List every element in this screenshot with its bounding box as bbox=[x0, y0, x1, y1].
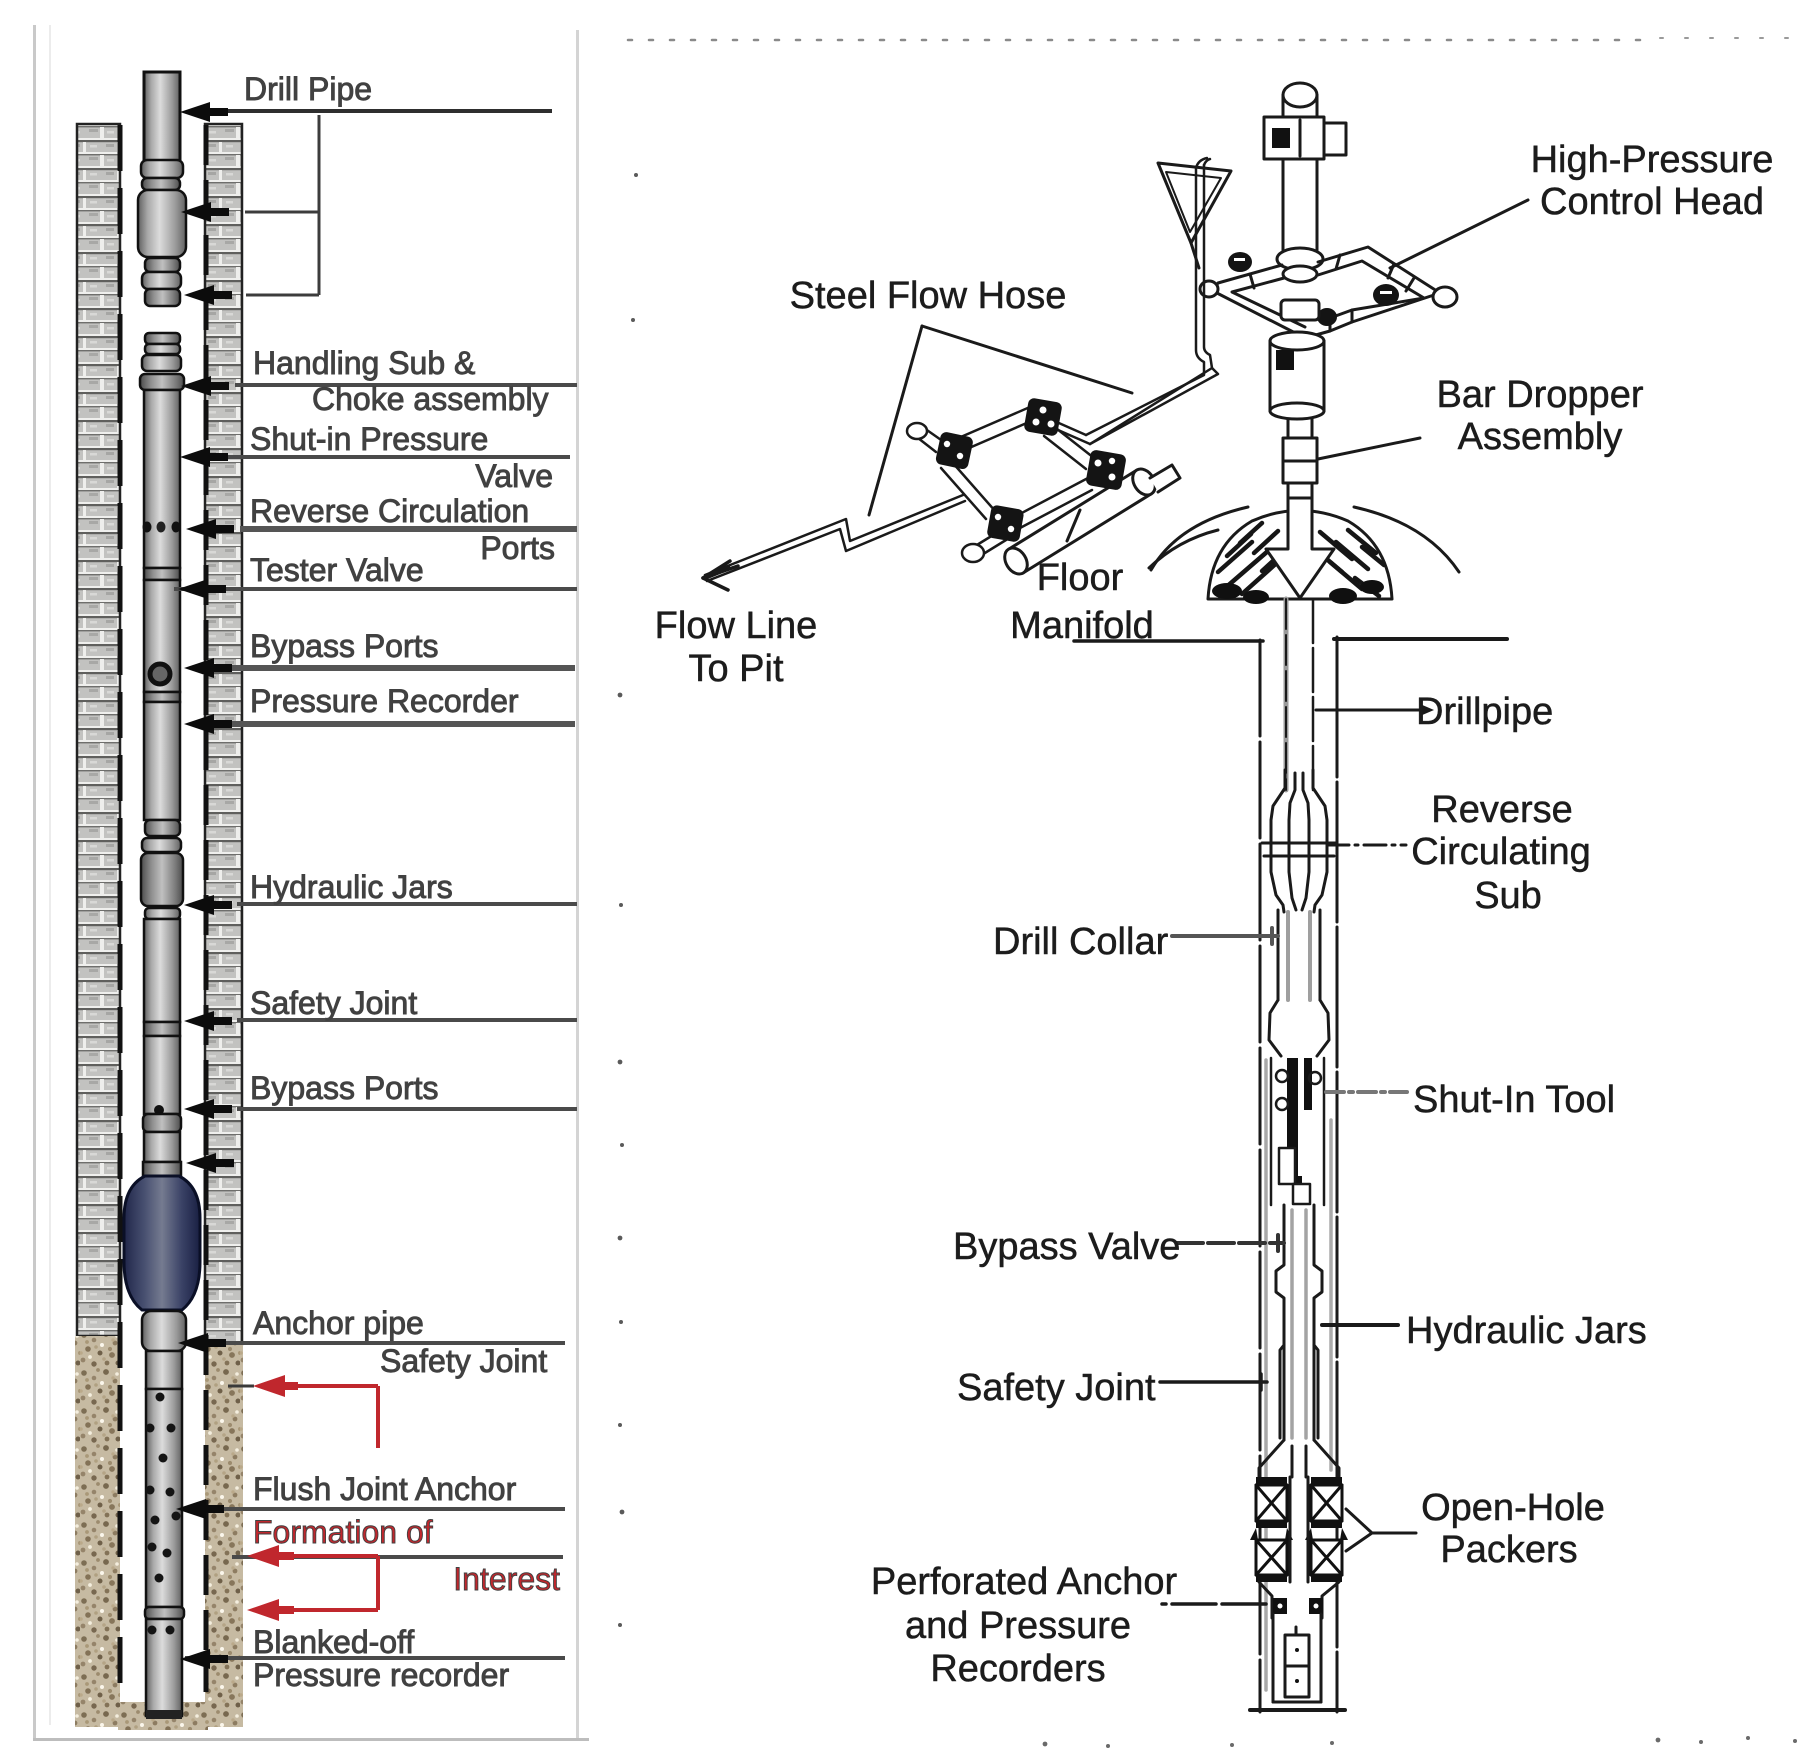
svg-text:Manifold: Manifold bbox=[1010, 605, 1154, 647]
svg-text:Open-Hole: Open-Hole bbox=[1421, 1487, 1605, 1529]
svg-text:Hydraulic Jars: Hydraulic Jars bbox=[1406, 1310, 1647, 1352]
svg-text:Ports: Ports bbox=[480, 530, 555, 566]
svg-text:Safety Joint: Safety Joint bbox=[250, 985, 417, 1021]
svg-text:Sub: Sub bbox=[1474, 875, 1542, 917]
svg-text:Blanked-off: Blanked-off bbox=[253, 1624, 414, 1660]
svg-text:Choke assembly: Choke assembly bbox=[312, 381, 549, 417]
svg-text:Control Head: Control Head bbox=[1540, 181, 1764, 223]
svg-text:Interest: Interest bbox=[453, 1561, 560, 1597]
svg-text:Circulating: Circulating bbox=[1411, 831, 1591, 873]
svg-text:Pressure Recorder: Pressure Recorder bbox=[250, 683, 519, 719]
svg-text:Steel Flow Hose: Steel Flow Hose bbox=[790, 275, 1067, 317]
svg-text:Formation of: Formation of bbox=[253, 1514, 433, 1550]
svg-text:Tester Valve: Tester Valve bbox=[250, 552, 424, 588]
svg-text:Valve: Valve bbox=[475, 458, 553, 494]
svg-text:Hydraulic Jars: Hydraulic Jars bbox=[250, 869, 453, 905]
svg-text:Floor: Floor bbox=[1037, 557, 1124, 599]
svg-text:Recorders: Recorders bbox=[930, 1648, 1105, 1690]
svg-text:Drill Pipe: Drill Pipe bbox=[244, 71, 372, 107]
svg-text:Reverse: Reverse bbox=[1431, 789, 1573, 831]
svg-text:Handling Sub &: Handling Sub & bbox=[253, 345, 475, 381]
svg-text:Perforated Anchor: Perforated Anchor bbox=[871, 1561, 1178, 1603]
svg-text:and Pressure: and Pressure bbox=[905, 1605, 1131, 1647]
svg-text:Bar Dropper: Bar Dropper bbox=[1437, 374, 1644, 416]
svg-text:To Pit: To Pit bbox=[688, 648, 783, 690]
svg-text:Flush Joint Anchor: Flush Joint Anchor bbox=[253, 1471, 517, 1507]
svg-text:Reverse Circulation: Reverse Circulation bbox=[250, 493, 529, 529]
svg-text:Bypass Ports: Bypass Ports bbox=[250, 1070, 439, 1106]
svg-text:Drillpipe: Drillpipe bbox=[1416, 691, 1553, 733]
svg-text:Assembly: Assembly bbox=[1458, 416, 1623, 458]
svg-text:Anchor pipe: Anchor pipe bbox=[253, 1305, 424, 1341]
svg-text:Safety Joint: Safety Joint bbox=[380, 1343, 547, 1379]
svg-text:Bypass Ports: Bypass Ports bbox=[250, 628, 439, 664]
svg-text:Packers: Packers bbox=[1440, 1529, 1577, 1571]
svg-text:Flow Line: Flow Line bbox=[655, 605, 818, 647]
svg-text:High-Pressure: High-Pressure bbox=[1531, 139, 1774, 181]
svg-text:Shut-In Tool: Shut-In Tool bbox=[1413, 1079, 1615, 1121]
svg-text:Drill Collar: Drill Collar bbox=[993, 921, 1169, 963]
svg-text:Bypass Valve: Bypass Valve bbox=[953, 1226, 1180, 1268]
svg-text:Shut-in Pressure: Shut-in Pressure bbox=[250, 421, 488, 457]
svg-text:Safety Joint: Safety Joint bbox=[957, 1367, 1156, 1409]
svg-text:Pressure recorder: Pressure recorder bbox=[253, 1657, 509, 1693]
